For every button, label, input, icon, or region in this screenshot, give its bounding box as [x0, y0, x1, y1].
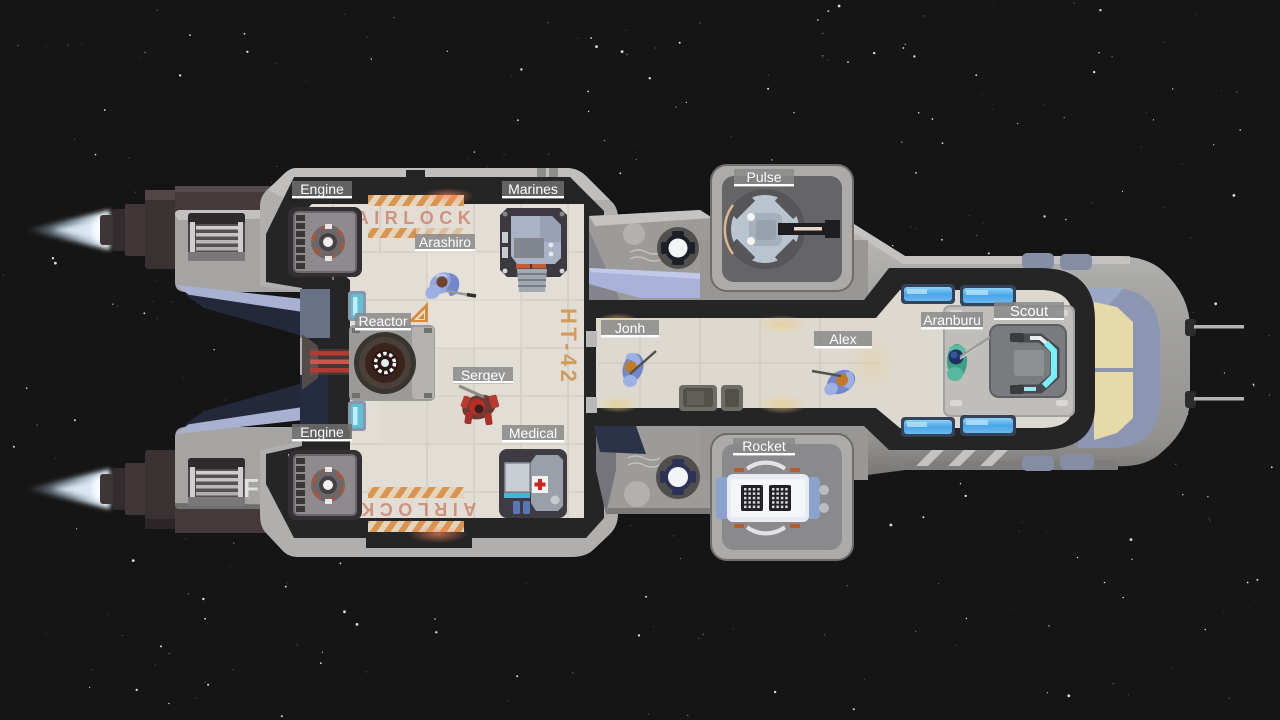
- svg-text:Arashiro: Arashiro: [419, 234, 471, 250]
- svg-text:Sergey: Sergey: [461, 367, 505, 383]
- svg-text:Pulse: Pulse: [746, 169, 781, 185]
- svg-text:Engine: Engine: [300, 181, 344, 197]
- svg-text:Alex: Alex: [829, 331, 856, 347]
- svg-text:Rocket: Rocket: [742, 438, 786, 454]
- svg-text:Engine: Engine: [300, 424, 344, 440]
- svg-text:HT-42: HT-42: [556, 308, 581, 385]
- svg-text:AIRLOCK: AIRLOCK: [356, 208, 477, 228]
- svg-text:Reactor: Reactor: [358, 313, 407, 329]
- svg-text:Aranburu: Aranburu: [923, 312, 981, 328]
- svg-text:Scout: Scout: [1010, 303, 1049, 320]
- svg-text:AIRLOCK: AIRLOCK: [356, 499, 477, 519]
- svg-text:Medical: Medical: [509, 425, 557, 441]
- svg-text:Marines: Marines: [508, 181, 558, 197]
- svg-text:Jonh: Jonh: [615, 320, 645, 336]
